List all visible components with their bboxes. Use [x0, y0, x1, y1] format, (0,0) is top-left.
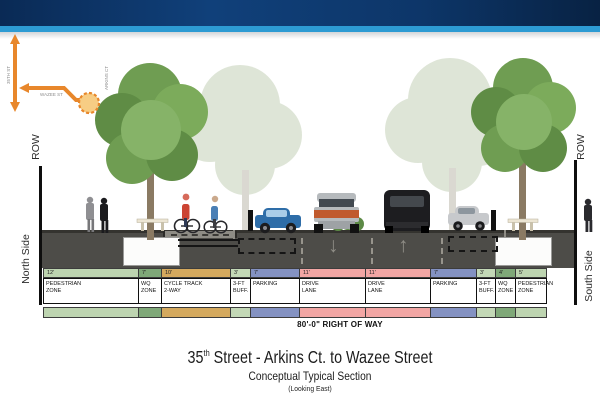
slide: 35TH ST WAZEE ST ARKINS CT ↓ ↑ [0, 0, 600, 400]
left-curb [233, 230, 235, 239]
zone-label: PEDESTRIANZONE [515, 278, 547, 304]
zone-label: 3-FTBUFF. [476, 278, 496, 304]
zone-label: PARKING [430, 278, 477, 304]
zone-strip [250, 307, 300, 318]
cross-street-label: ARKINS CT [104, 66, 109, 90]
zone-strip [161, 307, 231, 318]
zone-strip [230, 307, 251, 318]
slide-title: 35th Street - Arkins Ct. to Wazee Street [105, 347, 515, 368]
lane-line [441, 238, 443, 264]
row-line-left [39, 166, 42, 305]
zone-strip [365, 307, 431, 318]
tree-root-zone-right [495, 237, 552, 266]
zone-labels-row: PEDESTRIANZONEWQZONECYCLE TRACK2-WAY3-FT… [43, 278, 557, 304]
subsurface-cell-left [238, 238, 296, 254]
right-of-way-label: 80'-0" RIGHT OF WAY [240, 320, 440, 329]
zone-dim: 5' [515, 268, 547, 278]
zone-strip [430, 307, 477, 318]
background-tree [178, 65, 302, 230]
zone-label: PEDESTRIANZONE [43, 278, 139, 304]
vertical-street-label: 35TH ST [6, 66, 11, 84]
zone-dim: 10' [161, 268, 231, 278]
pickup-truck [314, 193, 359, 233]
zone-label: DRIVELANE [299, 278, 366, 304]
street-tree-right [471, 58, 576, 240]
zone-table: 12'7'10'3'7'11'11'7'3'4'5' PEDESTRIANZON… [43, 268, 557, 318]
zone-label: DRIVELANE [365, 278, 431, 304]
section-location-marker [79, 93, 99, 113]
horizontal-street-label: WAZEE ST [40, 92, 63, 97]
zone-strip [299, 307, 366, 318]
arrow-head-up-icon [10, 34, 20, 44]
zone-dim: 7' [138, 268, 162, 278]
cyclist-blue [204, 196, 227, 233]
zone-strip [138, 307, 162, 318]
title-rest: Street - Arkins Ct. to Wazee Street [210, 347, 433, 367]
subsurface-cell-right [448, 236, 498, 252]
zone-strip [515, 307, 547, 318]
zone-dim: 3' [230, 268, 251, 278]
subsurface-connector-left [178, 239, 238, 247]
zone-label: CYCLE TRACK2-WAY [161, 278, 231, 304]
zone-strip [476, 307, 496, 318]
row-label-right: ROW [575, 132, 587, 162]
zone-dim: 3' [476, 268, 496, 278]
south-side-label: South Side [583, 246, 595, 306]
slide-subtitle: Conceptual Typical Section [98, 369, 523, 383]
background-tree [385, 58, 512, 230]
street-subsurface: ↓ ↑ [40, 230, 576, 268]
shrub [330, 212, 364, 231]
zone-label: WQZONE [495, 278, 516, 304]
row-label-left: ROW [30, 132, 42, 162]
lane-line [371, 238, 373, 264]
arrow-head-left-icon [19, 83, 29, 93]
zone-dim: 11' [299, 268, 366, 278]
row-line-right [574, 160, 577, 305]
arrow-head-down-icon [10, 102, 20, 112]
title-block: 35th Street - Arkins Ct. to Wazee Street… [60, 347, 560, 393]
cyclist-red [175, 194, 200, 233]
pedestrian-right [584, 199, 592, 232]
location-map-inset: 35TH ST WAZEE ST ARKINS CT [2, 32, 122, 124]
black-suv [384, 190, 430, 233]
bollard-left [248, 210, 253, 231]
zone-strip [43, 307, 139, 318]
drive-lane-arrow-east: ↑ [398, 235, 409, 256]
zone-strip [495, 307, 516, 318]
zone-label: PARKING [250, 278, 300, 304]
pavement-surface [40, 230, 576, 233]
drive-lane-arrow-west: ↓ [328, 235, 339, 256]
cycle-track-centerline [171, 234, 229, 236]
slide-note: (Looking East) [85, 384, 535, 393]
zone-strip-row [43, 307, 557, 318]
zone-dim: 11' [365, 268, 431, 278]
tree-root-zone-left [123, 237, 180, 266]
pedestrian-pair [86, 197, 108, 233]
silver-car [448, 206, 489, 231]
zone-label: 3-FTBUFF. [230, 278, 251, 304]
bollard-right [491, 210, 496, 231]
header-bar [0, 0, 600, 26]
lane-line [301, 238, 303, 264]
zone-dims-row: 12'7'10'3'7'11'11'7'3'4'5' [43, 268, 557, 278]
zone-dim: 7' [430, 268, 477, 278]
zone-dim: 4' [495, 268, 516, 278]
zone-dim: 12' [43, 268, 139, 278]
zone-dim: 7' [250, 268, 300, 278]
title-prefix: 35 [188, 347, 204, 367]
zone-label: WQZONE [138, 278, 162, 304]
north-side-label: North Side [20, 229, 32, 289]
